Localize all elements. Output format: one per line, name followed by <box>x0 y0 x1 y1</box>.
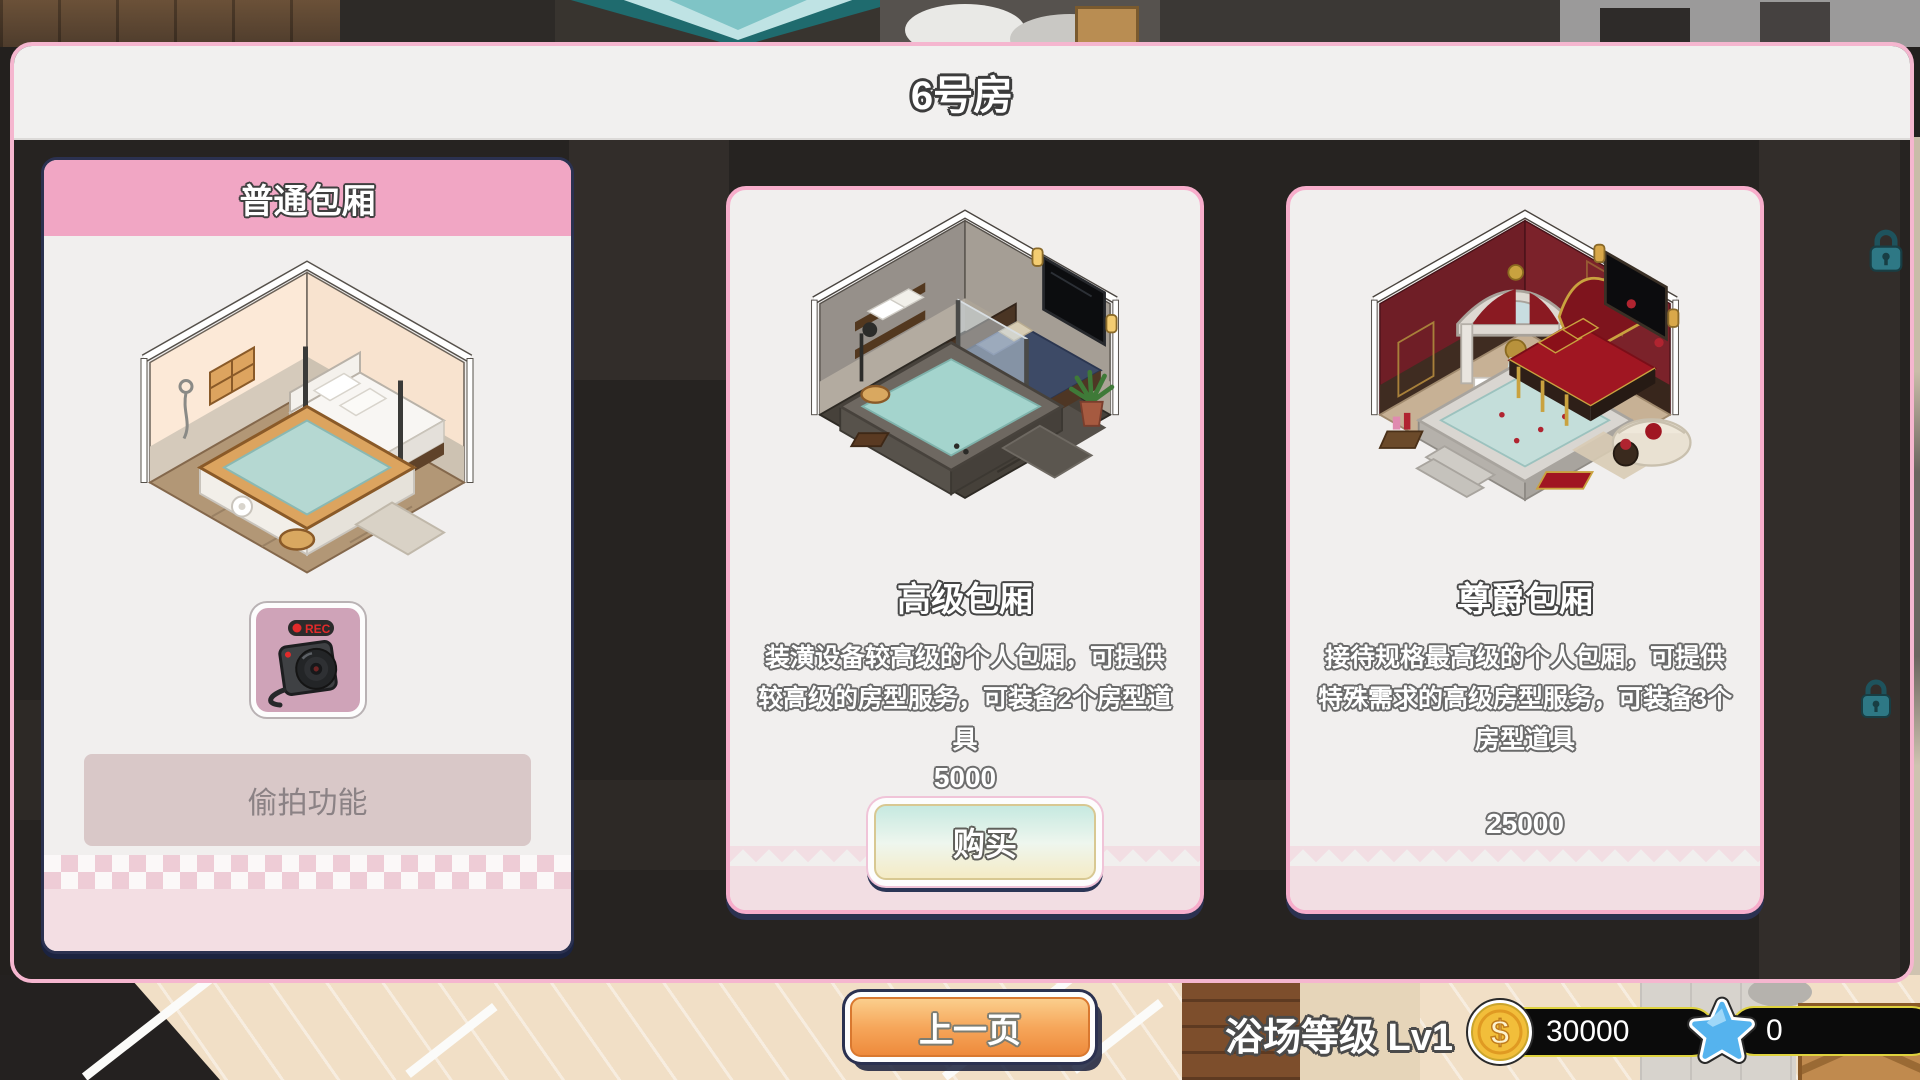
buy-button[interactable]: 购买 <box>868 798 1102 886</box>
coin-amount: 30000 <box>1546 1015 1629 1049</box>
buy-button-label: 购买 <box>953 819 1017 865</box>
bathhouse-level-label: 浴场等级 Lv1 <box>1225 1006 1453 1061</box>
rec-label: REC <box>305 622 331 636</box>
card-noble-description: 接待规格最高级的个人包厢，可提供特殊需求的高级房型服务，可装备3个房型道具 <box>1318 638 1732 761</box>
card-noble-zigzag-decor <box>1290 846 1760 866</box>
card-normal-footer-decor <box>44 889 571 951</box>
lock-icon <box>1858 678 1894 720</box>
star-icon <box>1682 992 1762 1072</box>
spy-camera-icon: REC <box>260 612 356 708</box>
room-illustration-noble <box>1310 204 1740 509</box>
decor-crate <box>1075 6 1139 47</box>
decor-wall-edge <box>405 1003 497 1078</box>
feature-label: 偷拍功能 <box>248 778 368 822</box>
feature-label-plate[interactable]: 偷拍功能 <box>84 754 531 846</box>
room-illustration-normal <box>92 252 522 587</box>
spy-camera-button[interactable]: REC <box>249 601 367 719</box>
previous-page-button[interactable]: 上一页 <box>845 992 1095 1062</box>
card-premium-room: 高级包厢 装潢设备较高级的个人包厢，可提供较高级的房型服务，可装备2个房型道具 … <box>726 186 1204 914</box>
lock-icon <box>1866 228 1906 274</box>
card-noble-room: 尊爵包厢 接待规格最高级的个人包厢，可提供特殊需求的高级房型服务，可装备3个房型… <box>1286 186 1764 914</box>
decor-shape <box>340 0 555 47</box>
card-premium-price: 5000 <box>730 762 1200 794</box>
decor-furniture <box>1760 2 1830 47</box>
star-counter: 0 <box>1682 992 1902 1072</box>
background-scene-top <box>0 0 1920 47</box>
previous-page-button-face: 上一页 <box>850 997 1090 1057</box>
dialog-title: 6号房 <box>911 63 1013 121</box>
room-dialog: 6号房 普通包厢 <box>10 42 1914 983</box>
coin-counter: 30000 $ <box>1462 994 1672 1072</box>
card-normal-header: 普通包厢 <box>44 160 571 236</box>
star-amount: 0 <box>1766 1014 1783 1048</box>
card-premium-description: 装潢设备较高级的个人包厢，可提供较高级的房型服务，可装备2个房型道具 <box>758 638 1172 761</box>
game-screen: 6号房 普通包厢 <box>0 0 1920 1080</box>
decor-shape <box>1160 0 1560 47</box>
decor-shape <box>569 140 729 380</box>
dialog-header: 6号房 <box>14 46 1910 140</box>
coin-symbol: $ <box>1491 1014 1510 1052</box>
spy-camera-tile: REC <box>256 608 360 712</box>
card-normal-room: 普通包厢 <box>41 157 574 954</box>
decor-wood-floor <box>0 0 340 47</box>
decor-snow <box>905 4 1025 47</box>
buy-button-face: 购买 <box>874 804 1096 880</box>
card-normal-diamond-decor <box>44 855 571 889</box>
card-normal-title: 普通包厢 <box>240 174 376 223</box>
card-noble-footer-decor <box>1290 866 1760 910</box>
card-premium-title: 高级包厢 <box>730 572 1200 621</box>
card-noble-price: 25000 <box>1290 808 1760 840</box>
previous-page-label: 上一页 <box>919 1003 1021 1052</box>
coin-icon: $ <box>1462 994 1538 1070</box>
room-illustration-premium <box>750 204 1180 509</box>
card-noble-title: 尊爵包厢 <box>1290 572 1760 621</box>
